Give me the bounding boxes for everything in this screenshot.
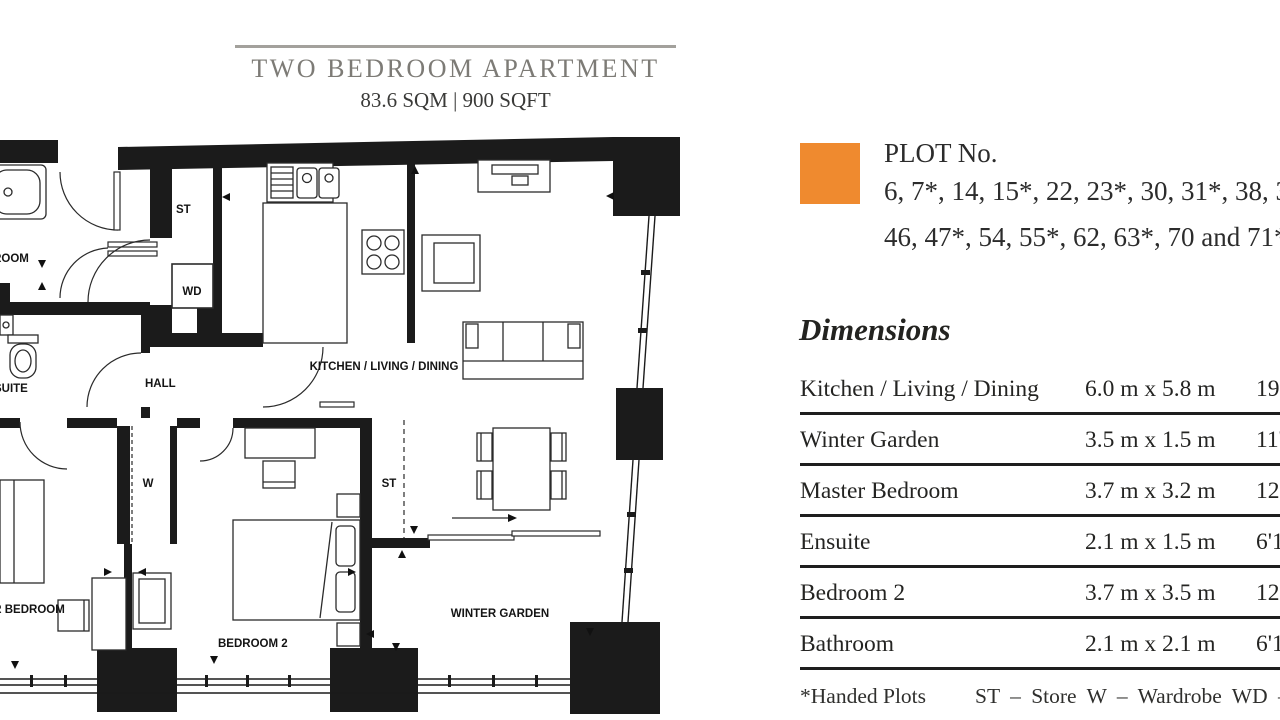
room-metric: 6.0 m x 5.8 m [1085, 376, 1216, 403]
table-row: Ensuite 2.1 m x 1.5 m 6'11" x 4'11" [800, 517, 1280, 568]
room-name: Master Bedroom [800, 478, 959, 505]
dining-table-chairs [477, 428, 566, 510]
room-metric: 3.5 m x 1.5 m [1085, 427, 1216, 454]
room-imperial: 12'2" x 11'6" [1256, 580, 1280, 607]
table-row: Bedroom 2 3.7 m x 3.5 m 12'2" x 11'6" [800, 568, 1280, 619]
title-rule [235, 45, 676, 48]
room-label-store-2: ST [382, 478, 397, 490]
room-name: Bathroom [800, 631, 894, 658]
table-row: Master Bedroom 3.7 m x 3.2 m 12'2" x 10'… [800, 466, 1280, 517]
bathtub-icon [0, 165, 46, 219]
armchair [422, 235, 480, 291]
room-name: Winter Garden [800, 427, 939, 454]
room-name: Kitchen / Living / Dining [800, 376, 1039, 403]
kitchen-sink-icon [267, 163, 339, 202]
room-label-hall: HALL [145, 378, 176, 390]
floorplan: BATHROOM ST WD HALL KITCHEN / LIVING / D… [0, 120, 690, 720]
room-label-washer-dryer: WD [182, 286, 201, 298]
room-label-ensuite: ENSUITE [0, 383, 28, 395]
master-desk-chair [58, 578, 126, 650]
room-label-master-bedroom: MASTER BEDROOM [0, 604, 65, 616]
plot-numbers-line1: 6, 7*, 14, 15*, 22, 23*, 30, 31*, 38, 39… [884, 176, 1280, 207]
toilet-icon [8, 335, 38, 378]
room-label-bathroom: BATHROOM [0, 253, 29, 265]
tv-bench [478, 160, 550, 192]
hob-icon [362, 230, 404, 274]
dimensions-heading: Dimensions [799, 312, 951, 348]
handed-plots-note: *Handed Plots [800, 684, 926, 709]
room-name: Ensuite [800, 529, 871, 556]
room-metric: 3.7 m x 3.5 m [1085, 580, 1216, 607]
room-label-wardrobe: W [143, 478, 154, 490]
brochure-page: TWO BEDROOM APARTMENT 83.6 SQM | 900 SQF… [0, 0, 1280, 720]
room-metric: 3.7 m x 3.2 m [1085, 478, 1216, 505]
dimensions-table: Kitchen / Living / Dining 6.0 m x 5.8 m … [800, 364, 1280, 670]
room-name: Bedroom 2 [800, 580, 905, 607]
room-imperial: 11'6" x 4'11" [1256, 427, 1280, 454]
room-imperial: 19'8" x 19'0" [1256, 376, 1280, 403]
sofa [463, 322, 583, 379]
room-metric: 2.1 m x 1.5 m [1085, 529, 1216, 556]
room-label-bedroom-2: BEDROOM 2 [218, 638, 288, 650]
table-row: Winter Garden 3.5 m x 1.5 m 11'6" x 4'11… [800, 415, 1280, 466]
room-label-winter-garden: WINTER GARDEN [451, 608, 549, 620]
page-title: TWO BEDROOM APARTMENT [235, 54, 676, 84]
plot-number-label: PLOT No. [884, 138, 998, 169]
room-imperial: 6'11" x 6'11" [1256, 631, 1280, 658]
room-imperial: 6'11" x 4'11" [1256, 529, 1280, 556]
room-metric: 2.1 m x 2.1 m [1085, 631, 1216, 658]
table-row: Bathroom 2.1 m x 2.1 m 6'11" x 6'11" [800, 619, 1280, 670]
room-label-kitchen-living-dining: KITCHEN / LIVING / DINING [310, 361, 459, 373]
table-row: Kitchen / Living / Dining 6.0 m x 5.8 m … [800, 364, 1280, 415]
abbreviation-legend: ST – Store W – Wardrobe WD – Washer Drye… [975, 684, 1280, 709]
room-imperial: 12'2" x 10'6" [1256, 478, 1280, 505]
plot-color-swatch [800, 143, 860, 204]
master-bed [0, 480, 44, 583]
room-label-store-1: ST [176, 204, 191, 216]
plot-numbers-line2: 46, 47*, 54, 55*, 62, 63*, 70 and 71* [884, 222, 1280, 253]
apartment-area: 83.6 SQM | 900 SQFT [235, 88, 676, 113]
ensuite-basin-icon [0, 315, 13, 335]
bedroom2-bed [233, 494, 360, 646]
kitchen-counter [263, 203, 347, 343]
